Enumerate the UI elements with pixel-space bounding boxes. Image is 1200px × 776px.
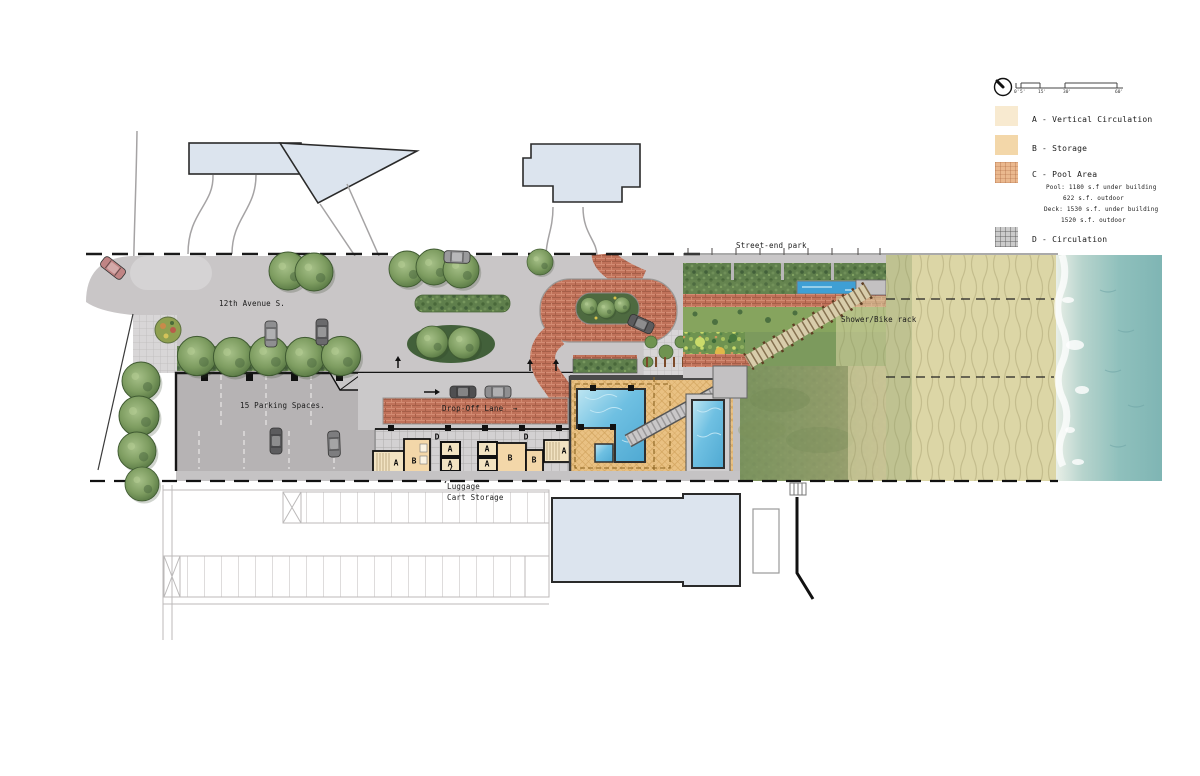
legend-swatch-vertical-circulation — [995, 106, 1018, 126]
legend-swatch-storage — [995, 135, 1018, 155]
site-plan-drawing — [0, 0, 1200, 776]
room-label-a: A — [485, 460, 490, 469]
dropoff-arrow-icon: → — [513, 404, 518, 413]
room-label-a: A — [394, 459, 399, 468]
label-luggage-line1: Luggage — [447, 482, 480, 491]
scale-tick: 5' — [1020, 90, 1025, 95]
flower-bed — [155, 317, 181, 343]
scale-tick: 60' — [1115, 90, 1123, 95]
south-building — [552, 483, 813, 599]
legend-swatch-circulation — [995, 227, 1018, 247]
room-label-d: D — [524, 433, 529, 442]
room-label-a: A — [485, 445, 490, 454]
legend-label-vertical-circulation: A - Vertical Circulation — [1032, 115, 1152, 124]
label-street-end-park: Street-end park — [736, 241, 807, 250]
water — [1056, 255, 1162, 481]
scale-tick: 30' — [1063, 90, 1071, 95]
dropoff-text: Drop-Off Lane — [442, 404, 503, 413]
street-end-park — [683, 248, 886, 378]
beach — [886, 255, 1058, 481]
legend-label-circulation: D - Circulation — [1032, 235, 1107, 244]
label-shower-bike-rack: Shower/Bike rack — [841, 315, 916, 324]
room-label-a: A — [562, 447, 567, 456]
room-label-b: B — [532, 456, 537, 465]
room-label-d: D — [435, 433, 440, 442]
label-parking-spaces: 15 Parking Spaces. — [240, 401, 325, 410]
room-label-b: B — [412, 457, 417, 466]
legend-pool-detail: Deck: 1530 s.f. under building — [1044, 206, 1158, 213]
neighbor-buildings — [189, 143, 640, 203]
site-plan-page: 12th Avenue S. 15 Parking Spaces. Drop-O… — [0, 0, 1200, 776]
scale-tick: 0' — [1014, 90, 1019, 95]
north-arrow-icon — [993, 77, 1013, 97]
label-street-name: 12th Avenue S. — [219, 299, 285, 308]
grass-dune — [738, 366, 886, 481]
legend-pool-detail: 1520 s.f. outdoor — [1061, 217, 1126, 224]
south-parking-outline — [163, 485, 549, 640]
label-luggage-line2: Cart Storage — [447, 493, 504, 502]
legend-pool-detail: Pool: 1180 s.f under building — [1046, 184, 1157, 191]
legend-label-storage: B - Storage — [1032, 144, 1087, 153]
room-label-a: A — [448, 445, 453, 454]
label-dropoff-lane: Drop-Off Lane → — [442, 404, 517, 413]
legend-pool-detail: 622 s.f. outdoor — [1063, 195, 1124, 202]
scale-tick: 15' — [1038, 90, 1046, 95]
room-label-b: B — [508, 454, 513, 463]
legend-swatch-pool-area — [995, 162, 1018, 183]
legend-label-pool-area: C - Pool Area — [1032, 170, 1097, 179]
room-label-a: A — [448, 460, 453, 469]
